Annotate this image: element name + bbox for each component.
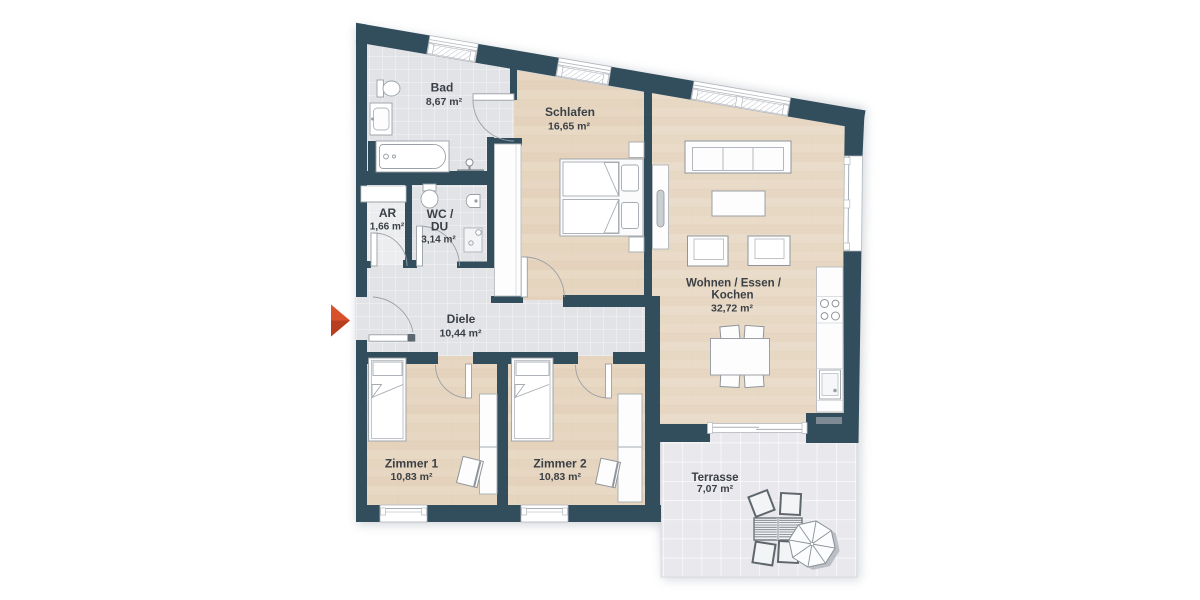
svg-text:Bad: Bad [431,81,454,95]
svg-text:7,07 m²: 7,07 m² [697,483,734,495]
svg-text:8,67 m²: 8,67 m² [426,96,463,108]
svg-text:Zimmer 2: Zimmer 2 [533,457,587,471]
svg-text:3,14 m²: 3,14 m² [421,235,456,246]
svg-text:Schlafen: Schlafen [545,105,595,119]
svg-text:32,72 m²: 32,72 m² [711,303,754,315]
svg-text:Wohnen / Essen /: Wohnen / Essen / [686,278,782,290]
svg-text:10,44 m²: 10,44 m² [439,328,482,340]
svg-text:DU: DU [431,220,448,234]
svg-text:Zimmer 1: Zimmer 1 [385,457,439,471]
svg-text:10,83 m²: 10,83 m² [539,471,582,483]
svg-text:Diele: Diele [447,312,476,326]
svg-text:1,66 m²: 1,66 m² [370,222,405,233]
svg-text:16,65 m²: 16,65 m² [548,121,591,133]
svg-text:10,83 m²: 10,83 m² [390,471,433,483]
svg-text:AR: AR [379,206,397,220]
svg-text:Kochen: Kochen [711,290,753,302]
